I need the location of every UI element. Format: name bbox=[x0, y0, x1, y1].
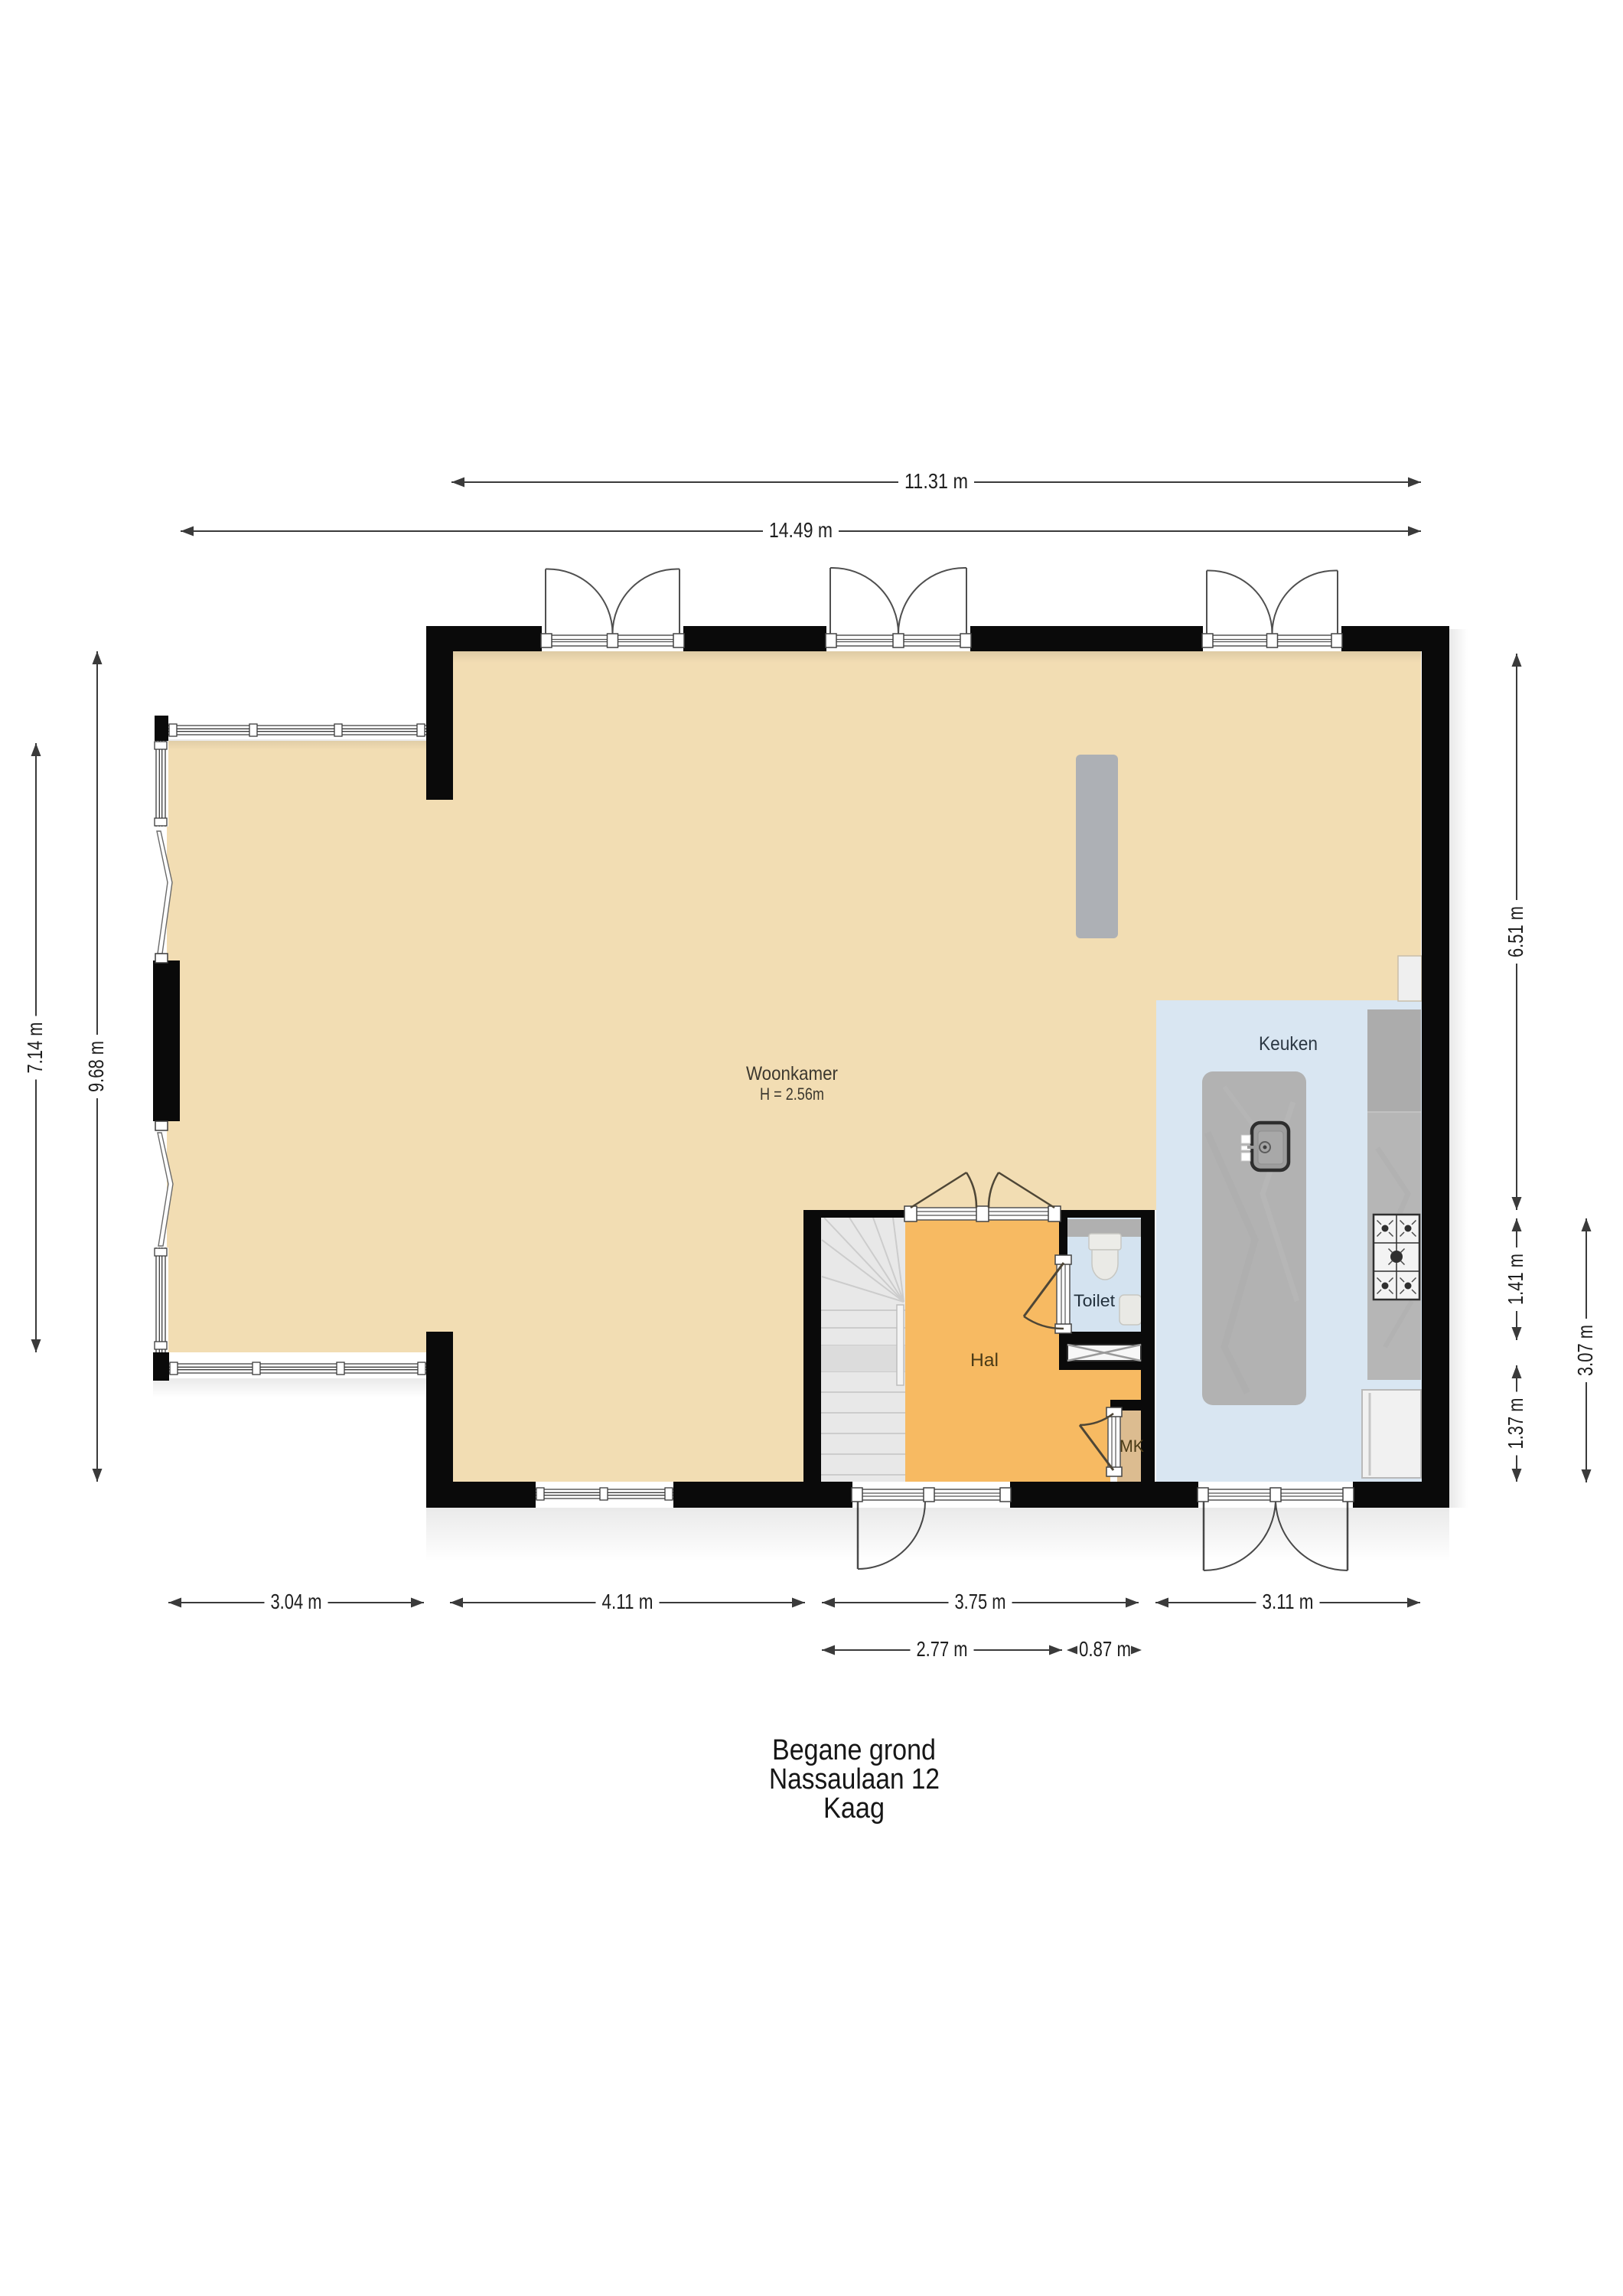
svg-text:3.04 m: 3.04 m bbox=[271, 1590, 322, 1613]
svg-text:2.77 m: 2.77 m bbox=[917, 1637, 968, 1661]
svg-text:MK: MK bbox=[1119, 1437, 1144, 1456]
svg-text:Kaag: Kaag bbox=[823, 1792, 885, 1825]
svg-text:Nassaulaan 12: Nassaulaan 12 bbox=[769, 1763, 940, 1795]
svg-text:1.37 m: 1.37 m bbox=[1504, 1398, 1527, 1450]
svg-text:3.11 m: 3.11 m bbox=[1263, 1590, 1314, 1613]
svg-text:Begane grond: Begane grond bbox=[772, 1734, 936, 1766]
svg-text:7.14 m: 7.14 m bbox=[23, 1022, 47, 1074]
svg-text:Woonkamer: Woonkamer bbox=[746, 1063, 838, 1084]
svg-text:3.07 m: 3.07 m bbox=[1573, 1325, 1597, 1376]
svg-text:H = 2.56m: H = 2.56m bbox=[760, 1084, 824, 1104]
svg-text:3.75 m: 3.75 m bbox=[955, 1590, 1006, 1613]
svg-text:0.87 m: 0.87 m bbox=[1079, 1637, 1131, 1661]
svg-text:4.11 m: 4.11 m bbox=[602, 1590, 653, 1613]
svg-text:6.51 m: 6.51 m bbox=[1504, 906, 1527, 957]
svg-text:11.31 m: 11.31 m bbox=[904, 469, 968, 493]
svg-text:14.49 m: 14.49 m bbox=[769, 518, 833, 542]
svg-text:9.68 m: 9.68 m bbox=[84, 1041, 108, 1092]
svg-text:Toilet: Toilet bbox=[1074, 1291, 1115, 1310]
svg-text:1.41 m: 1.41 m bbox=[1504, 1254, 1527, 1305]
svg-text:Keuken: Keuken bbox=[1259, 1033, 1318, 1055]
svg-text:Hal: Hal bbox=[970, 1350, 999, 1371]
